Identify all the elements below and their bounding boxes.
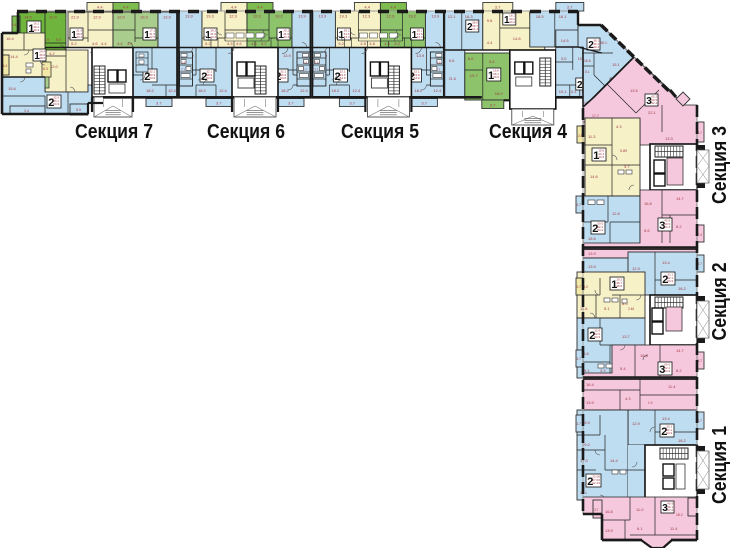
svg-text:5.1: 5.1 <box>585 70 590 74</box>
svg-text:3.7: 3.7 <box>624 164 630 169</box>
svg-text:16.1: 16.1 <box>559 14 568 19</box>
svg-text:13.9: 13.9 <box>588 251 597 256</box>
svg-text:6.0: 6.0 <box>468 56 474 61</box>
svg-text:5.4: 5.4 <box>620 366 626 371</box>
svg-text:42.5: 42.5 <box>149 35 155 39</box>
svg-text:2.1: 2.1 <box>314 68 319 72</box>
svg-text:2.1: 2.1 <box>181 68 186 72</box>
svg-text:5.2: 5.2 <box>261 41 267 46</box>
svg-text:15.1: 15.1 <box>612 62 621 67</box>
svg-text:4.4: 4.4 <box>364 5 370 10</box>
svg-text:3.4: 3.4 <box>181 61 186 65</box>
svg-text:19.3: 19.3 <box>206 14 215 19</box>
svg-text:62.44: 62.44 <box>592 481 600 485</box>
svg-text:4.4: 4.4 <box>231 5 237 10</box>
svg-text:9.6: 9.6 <box>449 58 455 63</box>
svg-text:12.3: 12.3 <box>253 14 262 19</box>
svg-text:4.4: 4.4 <box>117 41 123 46</box>
svg-text:12.4: 12.4 <box>300 88 309 93</box>
svg-text:Секция 1: Секция 1 <box>709 426 730 504</box>
svg-text:4.5: 4.5 <box>227 41 233 46</box>
svg-text:19.2: 19.2 <box>408 14 417 19</box>
svg-text:12.8: 12.8 <box>612 211 621 216</box>
svg-text:13.9: 13.9 <box>185 14 194 19</box>
svg-text:4.6: 4.6 <box>92 41 98 46</box>
svg-text:13.9: 13.9 <box>283 53 292 58</box>
svg-text:16.8: 16.8 <box>644 201 653 206</box>
svg-text:54.8: 54.8 <box>280 76 286 80</box>
svg-text:18.2: 18.2 <box>678 438 687 443</box>
svg-text:22.1: 22.1 <box>648 110 657 115</box>
svg-text:5.89: 5.89 <box>620 149 627 153</box>
svg-text:15.6: 15.6 <box>8 86 17 91</box>
svg-text:54.2: 54.2 <box>597 228 603 232</box>
svg-text:2.1: 2.1 <box>303 68 308 72</box>
svg-text:6.3: 6.3 <box>43 67 48 71</box>
svg-text:3.7: 3.7 <box>594 508 599 512</box>
svg-text:13.9: 13.9 <box>318 14 327 19</box>
svg-text:12.4: 12.4 <box>219 88 228 93</box>
svg-text:54.8: 54.8 <box>149 76 155 80</box>
svg-text:3.4: 3.4 <box>12 23 17 27</box>
svg-text:11.3: 11.3 <box>588 134 596 139</box>
svg-text:43.3: 43.3 <box>283 35 289 39</box>
svg-text:3.4: 3.4 <box>489 59 495 64</box>
svg-text:48.6: 48.6 <box>616 284 622 288</box>
svg-text:21.9: 21.9 <box>71 15 80 20</box>
svg-text:5.2: 5.2 <box>71 41 77 46</box>
svg-text:3.7: 3.7 <box>577 422 582 426</box>
svg-text:13.7: 13.7 <box>622 334 631 339</box>
svg-text:17.7: 17.7 <box>592 114 599 118</box>
svg-text:14.4: 14.4 <box>10 54 19 59</box>
svg-text:64.9: 64.9 <box>667 279 673 283</box>
svg-text:3.1: 3.1 <box>571 89 577 94</box>
svg-text:4.4: 4.4 <box>257 5 263 10</box>
svg-text:12.9: 12.9 <box>632 266 641 271</box>
svg-text:38.5: 38.5 <box>39 56 45 60</box>
svg-text:18.2: 18.2 <box>678 286 687 291</box>
svg-text:3.4: 3.4 <box>24 109 29 113</box>
svg-text:43.3: 43.3 <box>509 20 515 24</box>
svg-text:11.0: 11.0 <box>636 507 644 512</box>
svg-text:5.9: 5.9 <box>76 108 81 112</box>
svg-text:4.6: 4.6 <box>384 41 390 46</box>
svg-text:12.4: 12.4 <box>168 88 177 93</box>
svg-text:13.9: 13.9 <box>416 53 425 58</box>
svg-text:13.5: 13.5 <box>630 88 639 93</box>
svg-text:3.3: 3.3 <box>600 368 606 373</box>
svg-text:64.9: 64.9 <box>666 431 672 435</box>
svg-text:18.6: 18.6 <box>588 236 597 241</box>
svg-text:3.0: 3.0 <box>561 56 567 61</box>
svg-text:10.7: 10.7 <box>470 73 479 78</box>
svg-text:18.2: 18.2 <box>198 88 207 93</box>
svg-text:Секция 6: Секция 6 <box>207 121 285 143</box>
svg-text:19.3: 19.3 <box>140 15 149 20</box>
svg-text:4.4: 4.4 <box>97 5 103 10</box>
svg-text:14.6: 14.6 <box>590 174 599 179</box>
svg-text:5.2: 5.2 <box>338 41 344 46</box>
svg-text:5.6: 5.6 <box>644 228 650 233</box>
svg-text:3.7: 3.7 <box>567 5 573 10</box>
svg-text:3.7: 3.7 <box>577 285 582 289</box>
svg-text:54.8: 54.8 <box>340 76 346 80</box>
svg-text:Секция 3: Секция 3 <box>709 126 730 204</box>
svg-text:1.9: 1.9 <box>648 401 653 405</box>
svg-text:16.3: 16.3 <box>465 14 474 19</box>
svg-text:3.7: 3.7 <box>577 357 582 361</box>
svg-text:4.3: 4.3 <box>625 396 631 401</box>
svg-text:5.2: 5.2 <box>394 41 400 46</box>
svg-text:54.6: 54.6 <box>594 335 600 339</box>
svg-text:64.3: 64.3 <box>664 225 670 229</box>
svg-text:3.7: 3.7 <box>577 203 582 207</box>
svg-text:5.2: 5.2 <box>205 41 211 46</box>
svg-text:6.1: 6.1 <box>637 526 643 531</box>
svg-text:3.7: 3.7 <box>216 101 222 106</box>
svg-text:92.4: 92.4 <box>651 101 657 105</box>
svg-text:43.3: 43.3 <box>417 35 423 39</box>
svg-text:18.2: 18.2 <box>281 88 290 93</box>
svg-text:8.2: 8.2 <box>676 224 682 229</box>
svg-text:12.4: 12.4 <box>352 88 361 93</box>
svg-text:16.8: 16.8 <box>640 353 649 358</box>
svg-text:12.9: 12.9 <box>632 421 641 426</box>
svg-text:13.9: 13.9 <box>431 14 440 19</box>
svg-text:Секция 5: Секция 5 <box>341 121 419 143</box>
svg-text:3.7: 3.7 <box>288 101 294 106</box>
svg-text:13.3: 13.3 <box>665 136 674 141</box>
svg-text:16.8: 16.8 <box>605 509 614 514</box>
svg-text:40.4: 40.4 <box>33 28 39 32</box>
svg-text:4.2: 4.2 <box>49 51 55 56</box>
svg-text:19.3: 19.3 <box>339 14 348 19</box>
svg-text:3.7: 3.7 <box>349 101 355 106</box>
svg-text:3.7: 3.7 <box>156 101 162 106</box>
svg-text:16.4: 16.4 <box>586 382 595 387</box>
svg-text:44.5: 44.5 <box>598 155 604 159</box>
svg-text:18.2: 18.2 <box>146 88 155 93</box>
svg-text:12.3: 12.3 <box>229 14 238 19</box>
svg-text:64.9: 64.9 <box>664 369 670 373</box>
svg-text:14.8: 14.8 <box>513 36 522 41</box>
svg-text:18.2: 18.2 <box>676 513 683 517</box>
svg-text:14.7: 14.7 <box>676 196 685 201</box>
svg-text:3.4: 3.4 <box>314 61 319 65</box>
svg-text:40.2: 40.2 <box>76 35 82 39</box>
svg-text:10.1: 10.1 <box>559 89 568 94</box>
svg-text:9.8: 9.8 <box>487 18 493 23</box>
svg-text:18.2: 18.2 <box>331 88 340 93</box>
svg-text:9.1: 9.1 <box>584 368 590 373</box>
svg-text:38.1: 38.1 <box>600 41 607 45</box>
svg-text:16.0: 16.0 <box>495 91 504 96</box>
svg-text:14.4: 14.4 <box>610 458 619 463</box>
svg-text:3.4: 3.4 <box>436 61 441 65</box>
svg-text:12.4: 12.4 <box>433 88 442 93</box>
svg-text:13.9: 13.9 <box>163 15 172 20</box>
svg-text:12.3: 12.3 <box>386 14 395 19</box>
svg-text:14.7: 14.7 <box>676 348 685 353</box>
svg-text:3.4: 3.4 <box>303 61 308 65</box>
svg-text:13.4: 13.4 <box>662 416 671 421</box>
svg-text:11.4: 11.4 <box>668 384 676 389</box>
svg-text:12.9: 12.9 <box>93 15 102 20</box>
svg-text:5.1: 5.1 <box>604 306 610 311</box>
svg-text:21.6: 21.6 <box>449 77 456 81</box>
svg-text:12.3: 12.3 <box>362 14 371 19</box>
svg-text:41.4: 41.4 <box>472 27 478 31</box>
svg-text:67.6: 67.6 <box>667 508 673 512</box>
svg-text:3.7: 3.7 <box>495 5 501 10</box>
svg-text:18.5: 18.5 <box>536 14 545 19</box>
svg-text:2.1: 2.1 <box>436 68 441 72</box>
svg-text:3.7: 3.7 <box>421 101 427 106</box>
svg-text:13.9: 13.9 <box>588 264 597 269</box>
svg-text:54.8: 54.8 <box>414 76 420 80</box>
svg-text:4.6: 4.6 <box>236 41 242 46</box>
svg-text:Секция 7: Секция 7 <box>75 121 153 143</box>
svg-text:13.4: 13.4 <box>662 260 671 265</box>
svg-text:39.6: 39.6 <box>493 75 499 79</box>
svg-text:12.0: 12.0 <box>117 15 126 20</box>
svg-text:14.5: 14.5 <box>24 15 33 20</box>
svg-text:18.2: 18.2 <box>414 88 423 93</box>
svg-text:13.9: 13.9 <box>586 400 595 405</box>
svg-text:5.0: 5.0 <box>56 38 61 42</box>
svg-text:4.4: 4.4 <box>101 41 107 46</box>
svg-text:11.4: 11.4 <box>670 526 678 531</box>
svg-text:16.6: 16.6 <box>584 59 591 63</box>
svg-text:39.3: 39.3 <box>593 45 599 49</box>
svg-text:4.6: 4.6 <box>369 41 375 46</box>
svg-text:4.5: 4.5 <box>360 41 366 46</box>
svg-text:54.9: 54.9 <box>53 102 59 106</box>
svg-text:19.2: 19.2 <box>275 14 284 19</box>
svg-text:3.7: 3.7 <box>490 103 496 108</box>
svg-text:2.46: 2.46 <box>628 307 634 311</box>
svg-text:4.3: 4.3 <box>616 124 622 129</box>
svg-text:12.1: 12.1 <box>448 14 457 19</box>
svg-text:4.4: 4.4 <box>487 40 493 45</box>
svg-text:Секция 4: Секция 4 <box>489 121 568 143</box>
svg-text:13.9: 13.9 <box>298 14 307 19</box>
svg-text:Секция 2: Секция 2 <box>709 263 730 341</box>
svg-text:4.6: 4.6 <box>251 41 257 46</box>
svg-text:14.5: 14.5 <box>561 38 570 43</box>
svg-text:4.4: 4.4 <box>390 5 396 10</box>
svg-text:8.2: 8.2 <box>676 368 682 373</box>
svg-text:13.9: 13.9 <box>605 528 614 533</box>
svg-text:4.4: 4.4 <box>123 5 129 10</box>
svg-text:54.8: 54.8 <box>206 76 212 80</box>
svg-text:16.4: 16.4 <box>6 36 15 41</box>
svg-text:12.4: 12.4 <box>49 15 58 20</box>
